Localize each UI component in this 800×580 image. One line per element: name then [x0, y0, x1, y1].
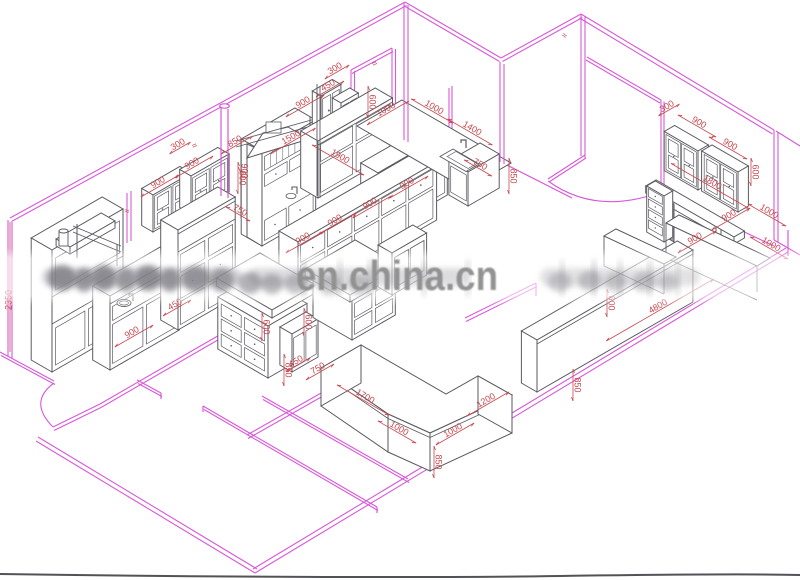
svg-text:600: 600 [304, 314, 314, 329]
svg-text:850: 850 [573, 377, 583, 392]
svg-text:≈: ≈ [125, 206, 130, 216]
svg-text:850: 850 [434, 454, 444, 469]
svg-text:en.china.cn: en.china.cn [296, 252, 498, 299]
svg-text:600: 600 [751, 164, 761, 179]
svg-text:600: 600 [262, 319, 272, 334]
svg-text:600: 600 [368, 94, 378, 109]
svg-text:900: 900 [240, 163, 250, 178]
svg-text:850: 850 [509, 168, 519, 183]
